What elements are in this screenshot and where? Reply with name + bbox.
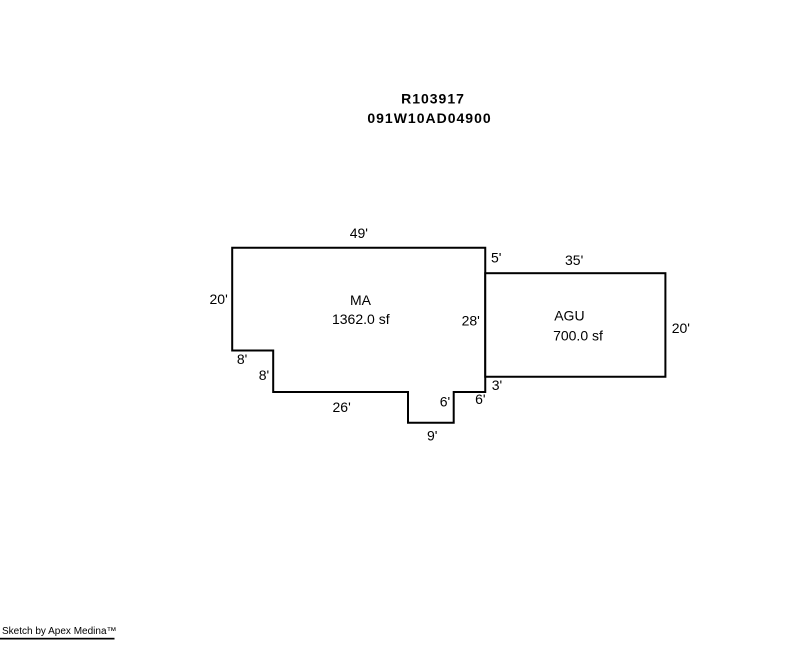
svg-text:20': 20' <box>210 291 228 307</box>
svg-text:6': 6' <box>440 394 450 410</box>
svg-text:R103917: R103917 <box>401 91 465 107</box>
svg-text:35': 35' <box>565 252 583 268</box>
svg-text:5': 5' <box>491 250 501 266</box>
svg-text:20': 20' <box>672 320 690 336</box>
svg-text:700.0 sf: 700.0 sf <box>553 328 603 344</box>
svg-text:28': 28' <box>462 312 480 328</box>
svg-text:3': 3' <box>492 377 502 393</box>
svg-text:1362.0 sf: 1362.0 sf <box>332 311 390 327</box>
svg-text:091W10AD04900: 091W10AD04900 <box>367 110 491 126</box>
svg-text:49': 49' <box>350 225 368 241</box>
svg-text:8': 8' <box>259 367 269 383</box>
svg-text:6': 6' <box>475 391 485 407</box>
svg-text:MA: MA <box>350 292 372 308</box>
svg-text:26': 26' <box>333 399 351 415</box>
svg-text:9': 9' <box>427 428 437 444</box>
svg-text:Sketch by Apex Medina™: Sketch by Apex Medina™ <box>2 626 117 637</box>
svg-text:AGU: AGU <box>554 307 584 323</box>
svg-text:8': 8' <box>237 351 247 367</box>
